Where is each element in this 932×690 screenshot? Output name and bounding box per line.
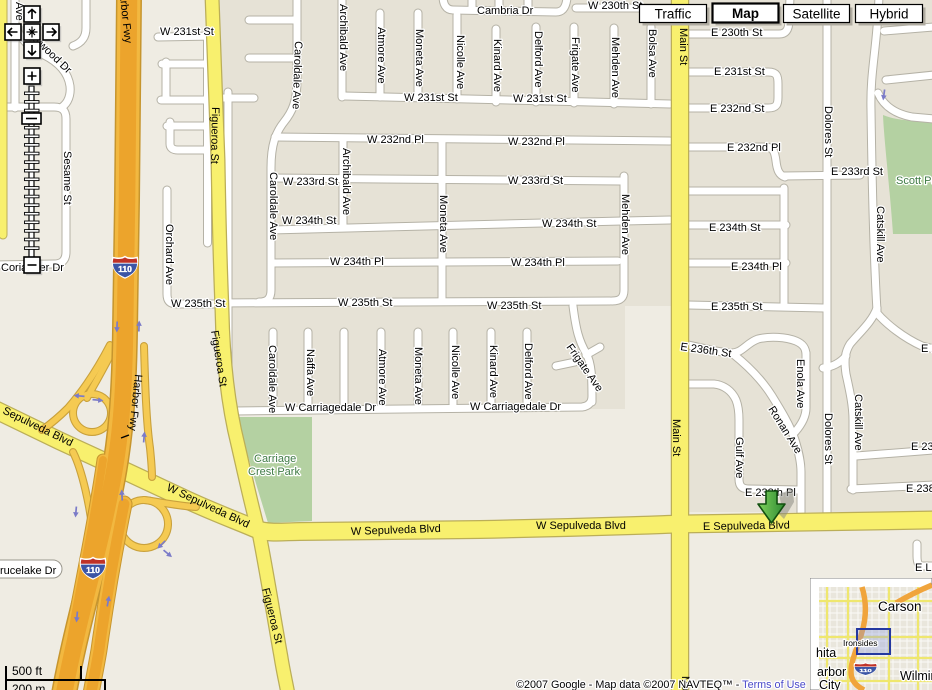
- svg-text:Moneta Ave: Moneta Ave: [437, 195, 449, 253]
- svg-text:E 2: E 2: [921, 343, 932, 355]
- svg-text:Moneta Ave: Moneta Ave: [412, 347, 424, 405]
- svg-text:500 ft: 500 ft: [12, 664, 43, 678]
- svg-text:rucelake Dr: rucelake Dr: [0, 565, 57, 577]
- svg-text:Carson: Carson: [878, 599, 922, 614]
- svg-text:W 231st St: W 231st St: [160, 26, 214, 38]
- svg-text:E 231st St: E 231st St: [714, 66, 765, 78]
- svg-text:E 238: E 238: [906, 483, 932, 495]
- svg-text:Delford Ave: Delford Ave: [522, 343, 534, 400]
- svg-text:Mehden Ave: Mehden Ave: [609, 37, 621, 98]
- svg-text:Carriage: Carriage: [254, 453, 296, 465]
- svg-text:Mehden Ave: Mehden Ave: [619, 194, 631, 255]
- svg-text:Dolores St: Dolores St: [822, 106, 834, 157]
- svg-text:Archibald Ave: Archibald Ave: [340, 148, 352, 215]
- svg-text:W 232nd Pl: W 232nd Pl: [508, 136, 565, 148]
- svg-text:Caroldale Ave: Caroldale Ave: [267, 172, 279, 240]
- svg-text:E 23: E 23: [911, 441, 932, 453]
- svg-text:Crest Park: Crest Park: [248, 466, 300, 478]
- svg-text:Bolsa Ave: Bolsa Ave: [646, 29, 658, 78]
- svg-text:W 235th St: W 235th St: [338, 297, 392, 309]
- svg-text:Nicolle Ave: Nicolle Ave: [449, 345, 461, 399]
- svg-text:Hybrid: Hybrid: [869, 6, 908, 21]
- svg-text:Scott Par: Scott Par: [896, 175, 932, 187]
- svg-text:Delford Ave: Delford Ave: [532, 31, 544, 88]
- svg-text:W 232nd Pl: W 232nd Pl: [367, 134, 424, 146]
- svg-text:Moneta Ave: Moneta Ave: [413, 29, 425, 87]
- svg-text:Main St: Main St: [670, 419, 682, 456]
- svg-text:arbor: arbor: [817, 665, 846, 679]
- svg-text:Atmore Ave: Atmore Ave: [376, 349, 388, 406]
- svg-text:©2007 Google - Map data ©2007: ©2007 Google - Map data ©2007 NAVTEQ™ - …: [516, 679, 806, 690]
- svg-text:W Carriagedale Dr: W Carriagedale Dr: [285, 402, 376, 414]
- svg-text:W 234th St: W 234th St: [282, 215, 336, 227]
- svg-text:E 232nd St: E 232nd St: [710, 103, 764, 115]
- svg-text:Traffic: Traffic: [655, 6, 692, 21]
- svg-text:W 233rd St: W 233rd St: [508, 175, 563, 187]
- svg-text:W 231st St: W 231st St: [404, 92, 458, 104]
- svg-text:Caroldale Ave: Caroldale Ave: [290, 41, 304, 110]
- svg-text:Nicolle Ave: Nicolle Ave: [454, 35, 466, 89]
- svg-text:Dolores St: Dolores St: [822, 413, 834, 464]
- svg-text:Catskill Ave: Catskill Ave: [874, 206, 886, 263]
- svg-text:Kinard Ave: Kinard Ave: [491, 39, 503, 92]
- svg-text:E 234th Pl: E 234th Pl: [731, 261, 782, 273]
- svg-text:Map: Map: [732, 6, 759, 21]
- svg-text:E 234th St: E 234th St: [709, 222, 760, 234]
- svg-text:W 230th St: W 230th St: [588, 0, 642, 12]
- svg-text:Wilmin: Wilmin: [900, 669, 932, 683]
- svg-text:E 232nd Pl: E 232nd Pl: [727, 142, 781, 154]
- svg-text:W 235th St: W 235th St: [487, 300, 541, 312]
- svg-text:Kinard Ave: Kinard Ave: [487, 345, 499, 398]
- svg-text:Caroldale Ave: Caroldale Ave: [266, 345, 278, 413]
- svg-text:W 233rd St: W 233rd St: [283, 176, 338, 188]
- svg-text:Archibald Ave: Archibald Ave: [337, 4, 349, 71]
- svg-text:W 235th St: W 235th St: [171, 298, 225, 310]
- svg-text:W 234th St: W 234th St: [542, 218, 596, 230]
- svg-text:Catskill Ave: Catskill Ave: [852, 394, 864, 451]
- svg-text:hita: hita: [816, 646, 836, 660]
- svg-text:Satellite: Satellite: [792, 6, 840, 21]
- svg-text:Atmore Ave: Atmore Ave: [375, 27, 387, 84]
- svg-text:E 235th St: E 235th St: [711, 301, 762, 313]
- svg-text:Naffa Ave: Naffa Ave: [304, 349, 316, 396]
- svg-text:E 233rd St: E 233rd St: [831, 166, 883, 178]
- svg-text:Frigate Ave: Frigate Ave: [569, 37, 581, 92]
- svg-text:E Sepulveda Blvd: E Sepulveda Blvd: [703, 519, 790, 533]
- svg-text:Sesame St: Sesame St: [61, 151, 73, 205]
- svg-text:Orchard Ave: Orchard Ave: [163, 224, 175, 285]
- svg-text:E 230th St: E 230th St: [711, 27, 762, 39]
- svg-text:Cambria Dr: Cambria Dr: [477, 5, 534, 17]
- svg-text:W Carriagedale Dr: W Carriagedale Dr: [470, 401, 561, 413]
- svg-text:Figueroa St: Figueroa St: [208, 107, 221, 164]
- svg-text:Ironsides: Ironsides: [843, 638, 878, 648]
- svg-text:E L: E L: [915, 562, 932, 574]
- svg-text:City: City: [819, 678, 841, 690]
- svg-text:W 234th Pl: W 234th Pl: [330, 256, 384, 268]
- svg-text:Enola Ave: Enola Ave: [794, 359, 806, 408]
- svg-text:Main St: Main St: [677, 28, 689, 65]
- svg-text:W 234th Pl: W 234th Pl: [511, 257, 565, 269]
- svg-text:Gulf Ave: Gulf Ave: [733, 437, 745, 478]
- svg-text:W 231st St: W 231st St: [513, 93, 567, 105]
- svg-text:200 m: 200 m: [12, 682, 45, 690]
- svg-text:W Sepulveda Blvd: W Sepulveda Blvd: [536, 520, 626, 532]
